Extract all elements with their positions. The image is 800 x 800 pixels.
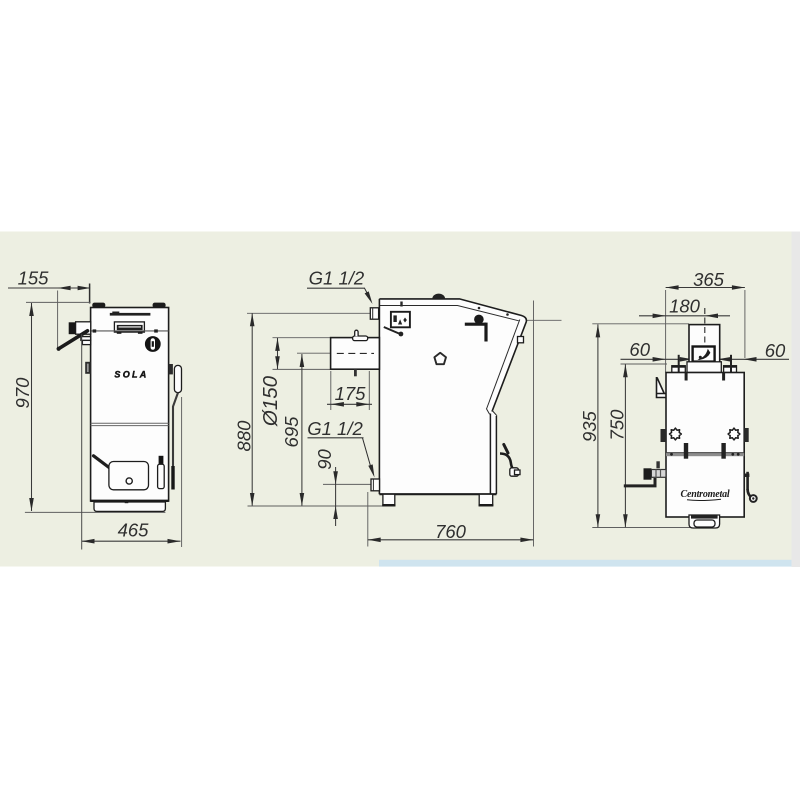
- svg-text:155: 155: [18, 268, 50, 289]
- svg-text:695: 695: [281, 416, 302, 448]
- svg-text:Ø150: Ø150: [259, 375, 282, 427]
- svg-text:G1 1/2: G1 1/2: [307, 418, 363, 439]
- svg-text:60: 60: [629, 339, 650, 360]
- svg-text:760: 760: [435, 521, 467, 542]
- svg-text:175: 175: [335, 383, 367, 404]
- svg-text:90: 90: [314, 449, 335, 470]
- svg-text:60: 60: [765, 340, 786, 361]
- svg-text:Centrometal: Centrometal: [681, 489, 730, 500]
- svg-text:SOLA: SOLA: [114, 369, 148, 379]
- svg-text:465: 465: [118, 520, 150, 541]
- svg-text:G1 1/2: G1 1/2: [309, 268, 365, 289]
- svg-text:365: 365: [693, 269, 725, 290]
- svg-text:750: 750: [607, 409, 628, 441]
- svg-text:935: 935: [579, 410, 600, 442]
- svg-text:180: 180: [669, 295, 701, 316]
- svg-text:880: 880: [234, 420, 255, 452]
- svg-text:970: 970: [12, 377, 33, 409]
